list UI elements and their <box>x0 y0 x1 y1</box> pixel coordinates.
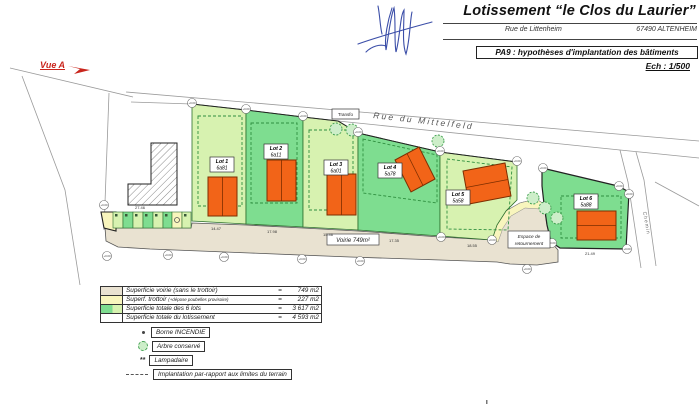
turnaround-label: Espace de retournement <box>508 231 550 248</box>
svg-text:+0.00: +0.00 <box>220 255 228 259</box>
document-label: PA9 : hypothèses d'implantation des bâti… <box>476 46 698 59</box>
svg-text:Voirie 749m²: Voirie 749m² <box>336 238 371 244</box>
legend-item-label: Arbre conservé <box>152 341 205 352</box>
svg-text:Lot 5: Lot 5 <box>452 192 465 198</box>
address-city: 67490 ALTENHEIM <box>636 26 697 33</box>
hydrant-dot-icon <box>142 331 145 334</box>
svg-text:27.46: 27.46 <box>135 205 146 210</box>
legend-row-trottoir: Superf. trottoir (+dépose poubelles prov… <box>100 296 322 305</box>
legend-label: Superficie voirie (sans le trottoir) <box>126 287 218 294</box>
legend-row-voirie: Superficie voirie (sans le trottoir) = 7… <box>100 286 322 296</box>
svg-text:Lot 2: Lot 2 <box>270 146 283 152</box>
road-swatch <box>101 287 123 295</box>
svg-text:+0.00: +0.00 <box>436 149 444 153</box>
sidewalk-swatch <box>101 296 123 304</box>
svg-text:+0.00: +0.00 <box>242 107 250 111</box>
legend-item-label: Lampadaire <box>149 355 193 366</box>
legend-item-borne: Borne INCENDIE <box>100 327 322 337</box>
legend-item-label: Borne INCENDIE <box>151 327 210 338</box>
legend-item-implantation: Implantation par-rapport aux limites du … <box>100 369 322 379</box>
tree-icon <box>539 202 551 214</box>
legend-note: (+dépose poubelles provisoire) <box>168 297 228 302</box>
svg-text:+0.00: +0.00 <box>299 114 307 118</box>
svg-text:14.47: 14.47 <box>211 226 222 231</box>
svg-text:+0.00: +0.00 <box>623 247 631 251</box>
svg-text:Lot 1: Lot 1 <box>216 159 229 165</box>
street-lamp-icon: ** <box>140 357 145 364</box>
lots-swatch <box>101 305 123 313</box>
legend-value: 227 m2 <box>285 296 321 304</box>
total-swatch <box>101 314 123 322</box>
street-name-label: Rue du Mittelfeld <box>373 110 475 131</box>
scale-label: Ech : 1/500 <box>560 61 690 71</box>
svg-text:retournement: retournement <box>515 241 544 247</box>
equals-sign: = <box>275 287 285 295</box>
stalls-row <box>113 212 191 228</box>
existing-building-hatched <box>128 143 177 205</box>
lot-label-4: Lot 4 5a78 <box>378 163 402 178</box>
lot-label-3: Lot 3 6a01 <box>324 160 348 175</box>
tree-icon <box>527 192 539 204</box>
svg-text:5a58: 5a58 <box>452 199 463 205</box>
svg-text:15.46: 15.46 <box>323 232 334 237</box>
tree-icon <box>330 123 342 135</box>
lot-label-5: Lot 5 5a58 <box>446 190 470 205</box>
svg-text:+0.00: +0.00 <box>298 257 306 261</box>
svg-text:6a11: 6a11 <box>271 153 282 159</box>
svg-text:17.35: 17.35 <box>389 238 400 243</box>
voirie-label: Voirie 749m² <box>327 234 379 245</box>
legend-label: Superficie totale du lotissement <box>126 314 215 321</box>
svg-text:5a88: 5a88 <box>580 203 591 209</box>
legend-value: 749 m2 <box>285 287 321 295</box>
legend: Superficie voirie (sans le trottoir) = 7… <box>100 286 322 379</box>
chemin-label: Chemin <box>641 211 651 235</box>
svg-text:21.49: 21.49 <box>585 251 596 256</box>
legend-value: 4 593 m2 <box>285 314 321 322</box>
svg-text:+0.00: +0.00 <box>103 254 111 258</box>
lot-label-6: Lot 6 5a88 <box>574 194 598 209</box>
svg-text:Lot 6: Lot 6 <box>580 196 593 202</box>
legend-label: Superficie totale des 6 lots <box>126 305 201 312</box>
svg-text:+0.00: +0.00 <box>188 101 196 105</box>
legend-row-total: Superficie totale du lotissement = 4 593… <box>100 314 322 323</box>
legend-item-lampadaire: ** Lampadaire <box>100 355 322 365</box>
svg-text:+0.00: +0.00 <box>625 192 633 196</box>
lot-parcel-4 <box>358 133 440 236</box>
lot-label-1: Lot 1 6a81 <box>210 157 234 172</box>
address-divider <box>443 39 697 40</box>
svg-text:+0.00: +0.00 <box>539 166 547 170</box>
svg-text:+0.00: +0.00 <box>164 253 172 257</box>
svg-text:+0.00: +0.00 <box>437 235 445 239</box>
tree-icon <box>551 212 563 224</box>
address-street: Rue de Littenheim <box>505 26 562 33</box>
svg-text:+0.00: +0.00 <box>356 259 364 263</box>
dashed-line-icon <box>126 374 148 375</box>
tree-icon <box>432 135 444 147</box>
svg-text:Lot 4: Lot 4 <box>384 165 397 171</box>
lot-label-2: Lot 2 6a11 <box>264 144 288 159</box>
svg-text:+0.00: +0.00 <box>488 238 496 242</box>
svg-text:6a81: 6a81 <box>216 166 227 172</box>
legend-item-label: Implantation par-rapport aux limites du … <box>153 369 292 380</box>
equals-sign: = <box>275 305 285 313</box>
svg-text:+0.00: +0.00 <box>615 184 623 188</box>
page-title: Lotissement “le Clos du Laurier” <box>276 3 696 19</box>
svg-text:Transfo: Transfo <box>338 112 354 117</box>
equals-sign: = <box>275 314 285 322</box>
svg-text:6a01: 6a01 <box>330 169 341 175</box>
preserved-tree-icon <box>138 341 148 351</box>
legend-row-lots: Superficie totale des 6 lots = 3 617 m2 <box>100 305 322 314</box>
scale-tick <box>486 400 488 404</box>
address-row: Rue de Littenheim 67490 ALTENHEIM <box>505 26 697 33</box>
transfo-box: Transfo <box>332 109 359 119</box>
svg-text:+0.00: +0.00 <box>513 159 521 163</box>
svg-text:+0.00: +0.00 <box>354 130 362 134</box>
view-a-label: Vue A <box>40 60 65 70</box>
svg-text:18.55: 18.55 <box>467 243 478 248</box>
legend-label: Superf. trottoir <box>126 296 167 303</box>
view-a-arrow-icon <box>66 61 94 77</box>
equals-sign: = <box>275 296 285 304</box>
svg-text:+0.00: +0.00 <box>100 203 108 207</box>
title-divider <box>443 23 697 24</box>
bin-drop-cell <box>172 212 182 228</box>
svg-text:Lot 3: Lot 3 <box>330 162 343 168</box>
svg-text:+0.00: +0.00 <box>523 267 531 271</box>
svg-text:5a78: 5a78 <box>384 172 395 178</box>
svg-text:17.98: 17.98 <box>267 229 278 234</box>
legend-item-arbre: Arbre conservé <box>100 341 322 351</box>
svg-text:Espace de: Espace de <box>518 234 541 240</box>
plan-sheet: +0.00+0.00 +0.00+0.00 +0.00+0.00 +0.00+0… <box>0 0 700 414</box>
legend-value: 3 617 m2 <box>285 305 321 313</box>
